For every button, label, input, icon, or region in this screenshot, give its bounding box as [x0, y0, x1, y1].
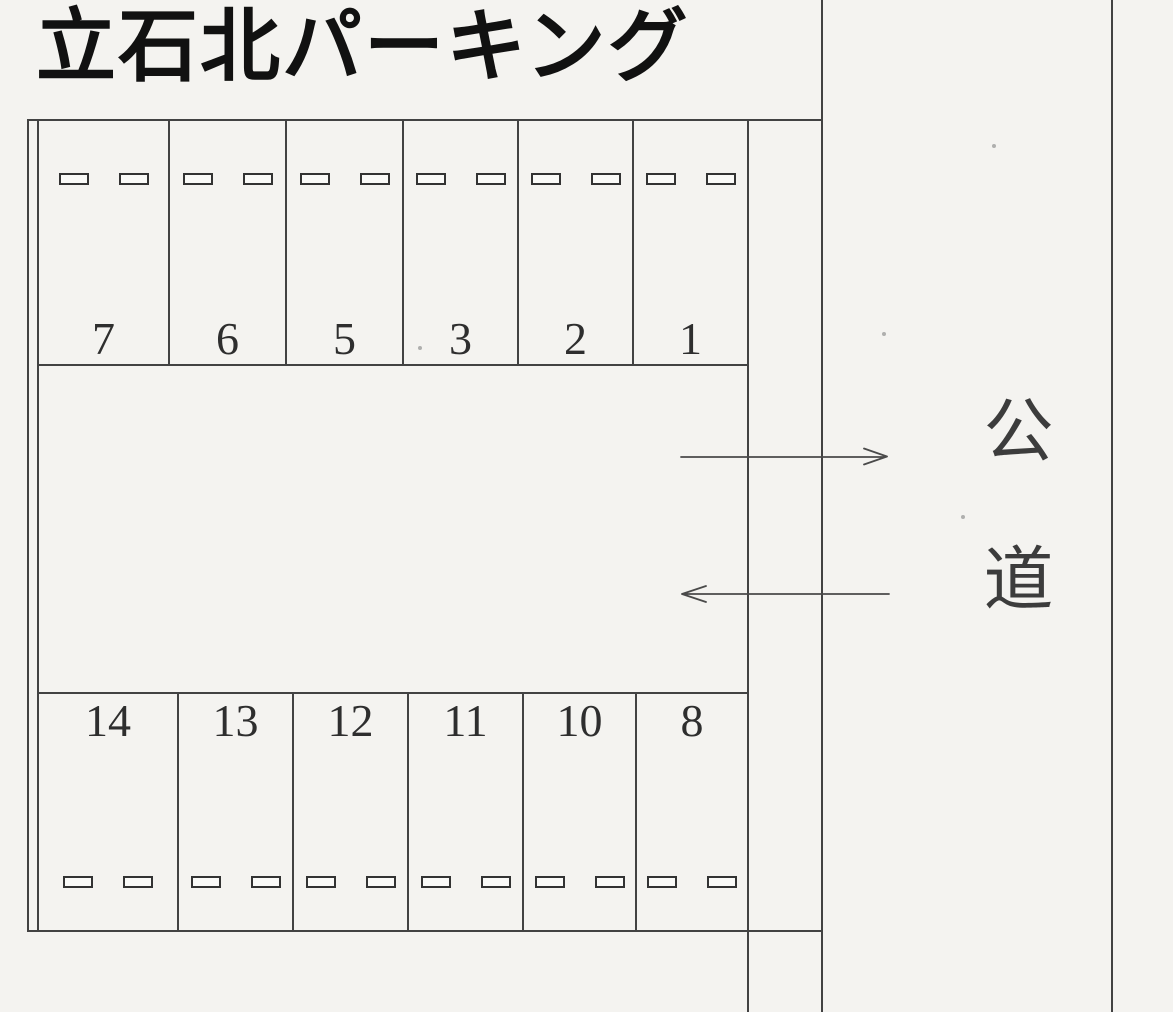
- space-number: 2: [564, 316, 587, 362]
- space-number: 3: [449, 316, 472, 362]
- parking-space-5: 5: [285, 121, 402, 364]
- space-number: 13: [213, 698, 259, 744]
- wheel-stops: [416, 173, 506, 185]
- driveway-line: [747, 119, 749, 1012]
- space-number: 10: [557, 698, 603, 744]
- parking-space-1: 1: [632, 121, 747, 364]
- wheel-stop-icon: [595, 876, 625, 888]
- road-label: 公道: [976, 394, 1046, 690]
- wheel-stops: [63, 876, 153, 888]
- wheel-stop-icon: [63, 876, 93, 888]
- scan-speck: [961, 515, 965, 519]
- wheel-stop-icon: [191, 876, 221, 888]
- wheel-stop-icon: [481, 876, 511, 888]
- space-number: 12: [328, 698, 374, 744]
- wheel-stop-icon: [59, 173, 89, 185]
- parking-space-7: 7: [39, 121, 168, 364]
- wheel-stop-icon: [366, 876, 396, 888]
- wheel-stop-icon: [119, 173, 149, 185]
- road-edge-right-line: [1111, 0, 1113, 1012]
- wheel-stops: [183, 173, 273, 185]
- space-number: 5: [333, 316, 356, 362]
- wheel-stop-icon: [183, 173, 213, 185]
- wheel-stop-icon: [531, 173, 561, 185]
- wheel-stop-icon: [300, 173, 330, 185]
- parking-space-3: 3: [402, 121, 517, 364]
- wheel-stop-icon: [416, 173, 446, 185]
- entry-arrow: [677, 581, 891, 607]
- wheel-stops: [647, 876, 737, 888]
- parking-space-2: 2: [517, 121, 632, 364]
- page-title: 立石北パーキング: [36, 2, 690, 92]
- wheel-stop-icon: [707, 876, 737, 888]
- space-number: 11: [443, 698, 487, 744]
- parking-space-8: 8: [635, 694, 747, 932]
- wheel-stop-icon: [647, 876, 677, 888]
- parking-space-13: 13: [177, 694, 292, 932]
- parking-space-10: 10: [522, 694, 635, 932]
- wheel-stops: [191, 876, 281, 888]
- parking-row-top: 765321: [39, 121, 747, 364]
- space-number: 14: [85, 698, 131, 744]
- top-row-bottom-line: [37, 364, 749, 366]
- scan-speck: [418, 346, 422, 350]
- wheel-stop-icon: [243, 173, 273, 185]
- wheel-stops: [59, 173, 149, 185]
- wheel-stops: [646, 173, 736, 185]
- parking-space-6: 6: [168, 121, 285, 364]
- wheel-stop-icon: [251, 876, 281, 888]
- space-number: 1: [679, 316, 702, 362]
- wheel-stop-icon: [123, 876, 153, 888]
- space-number: 7: [92, 316, 115, 362]
- wheel-stops: [306, 876, 396, 888]
- parking-diagram-page: 立石北パーキング 765321 14131211108 公道: [0, 0, 1173, 1012]
- wheel-stop-icon: [591, 173, 621, 185]
- wheel-stops: [531, 173, 621, 185]
- space-number: 6: [216, 316, 239, 362]
- wheel-stop-icon: [646, 173, 676, 185]
- wheel-stop-icon: [421, 876, 451, 888]
- wheel-stops: [421, 876, 511, 888]
- wheel-stop-icon: [476, 173, 506, 185]
- wheel-stop-icon: [306, 876, 336, 888]
- parking-space-12: 12: [292, 694, 407, 932]
- road-edge-left-line: [821, 0, 823, 1012]
- wheel-stop-icon: [360, 173, 390, 185]
- wheel-stop-icon: [706, 173, 736, 185]
- left-boundary-outer-line: [27, 119, 29, 932]
- parking-row-bottom: 14131211108: [39, 694, 747, 932]
- wheel-stops: [300, 173, 390, 185]
- exit-arrow: [679, 443, 893, 469]
- wheel-stop-icon: [535, 876, 565, 888]
- wheel-stops: [535, 876, 625, 888]
- parking-space-14: 14: [39, 694, 177, 932]
- space-number: 8: [681, 698, 704, 744]
- parking-space-11: 11: [407, 694, 522, 932]
- scan-speck: [992, 144, 996, 148]
- scan-speck: [882, 332, 886, 336]
